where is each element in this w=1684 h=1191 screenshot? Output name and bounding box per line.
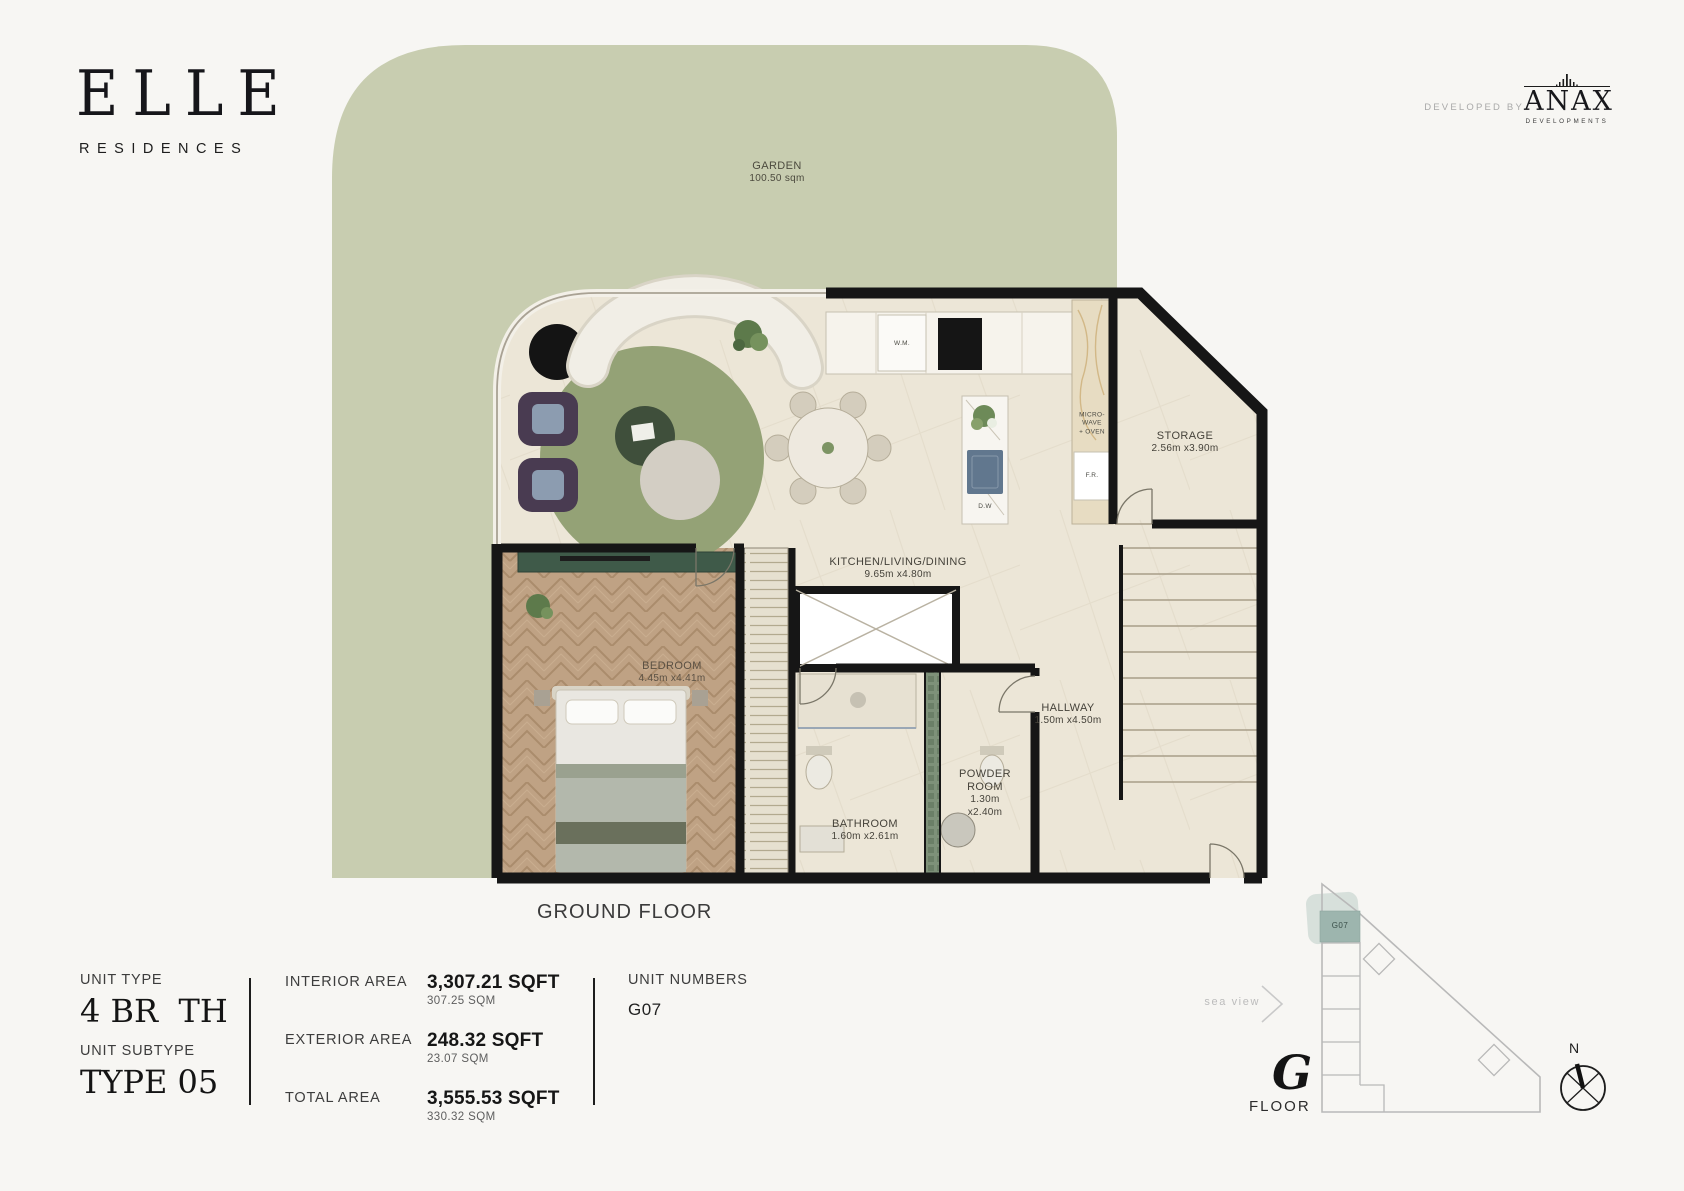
sea-view-label: sea view	[1150, 996, 1260, 1008]
developer-logo-rule	[1524, 86, 1610, 87]
dishwasher-label: D.W	[978, 503, 992, 511]
exterior-area-row: EXTERIOR AREA 248.32 SQFT 23.07 SQM	[285, 1030, 585, 1088]
bed	[534, 686, 708, 872]
compass	[1561, 1064, 1605, 1110]
washing-machine-label: W.M.	[894, 340, 910, 348]
developer-sub: DEVELOPMENTS	[1524, 118, 1610, 125]
hallway-label: HALLWAY 1.50m x4.50m	[1035, 702, 1102, 728]
divider	[593, 978, 595, 1105]
brand-logo-sub: RESIDENCES	[79, 141, 248, 157]
sea-view-arrow	[1262, 986, 1282, 1022]
floor-letter: G	[1272, 1050, 1312, 1097]
nightstand	[534, 690, 550, 706]
unit-type-block: UNIT TYPE 4 BR TH UNIT SUBTYPE TYPE 05	[80, 972, 228, 1098]
unit-type-label: UNIT TYPE	[80, 972, 228, 988]
plan-caption: GROUND FLOOR	[537, 901, 712, 924]
unit-subtype-value: TYPE 05	[80, 1066, 228, 1098]
unit-numbers-label: UNIT NUMBERS	[628, 972, 748, 988]
wardrobe	[744, 548, 788, 878]
key-plan-unit-label: G07	[1332, 921, 1349, 930]
unit-type-value: 4 BR TH	[80, 995, 228, 1027]
kitchen-living-dining-label: KITCHEN/LIVING/DINING 9.65m x4.80m	[829, 556, 966, 582]
fridge-label: F.R.	[1086, 472, 1099, 480]
toilet	[806, 746, 832, 789]
floor-plan-drawing	[0, 0, 1684, 1191]
unit-numbers-block: UNIT NUMBERS G07	[628, 972, 748, 1020]
book	[631, 423, 655, 442]
tv-console	[518, 552, 740, 572]
areas-block: INTERIOR AREA 3,307.21 SQFT 307.25 SQM E…	[285, 972, 585, 1146]
developer-logo: ANAX DEVELOPMENTS	[1524, 70, 1610, 125]
cooktop	[938, 318, 982, 370]
coffee-table-light	[640, 440, 720, 520]
floor-word: FLOOR	[1249, 1098, 1311, 1115]
garden-label: GARDEN 100.50 sqm	[749, 160, 804, 186]
armchair	[518, 458, 578, 512]
nightstand	[692, 690, 708, 706]
total-area-row: TOTAL AREA 3,555.53 SQFT 330.32 SQM	[285, 1088, 585, 1146]
bathroom-label: BATHROOM 1.60m x2.61m	[832, 818, 899, 844]
building-icon	[1552, 72, 1582, 88]
bedroom-label: BEDROOM 4.45m x4.41m	[639, 660, 706, 686]
elevator	[796, 590, 956, 668]
developed-by-label: DEVELOPED BY	[1424, 102, 1524, 113]
powder-room-label: POWDER ROOM 1.30m x2.40m	[953, 768, 1017, 819]
compass-north-label: N	[1569, 1040, 1579, 1056]
developer-name: ANAX	[1524, 88, 1610, 116]
interior-area-row: INTERIOR AREA 3,307.21 SQFT 307.25 SQM	[285, 972, 585, 1030]
unit-numbers-value: G07	[628, 1000, 748, 1020]
kitchen-counter	[826, 312, 1072, 374]
mosaic-wall	[925, 668, 940, 878]
storage-label: STORAGE 2.56m x3.90m	[1152, 430, 1219, 456]
brand-logo: ELLE	[76, 62, 294, 125]
floorplan-page: { "brand": { "logo": "ELLE", "sub": "RES…	[0, 0, 1684, 1191]
microwave-oven-label: MICRO- WAVE + OVEN	[1079, 411, 1105, 436]
divider	[249, 978, 251, 1105]
armchair	[518, 392, 578, 446]
unit-subtype-label: UNIT SUBTYPE	[80, 1043, 228, 1059]
